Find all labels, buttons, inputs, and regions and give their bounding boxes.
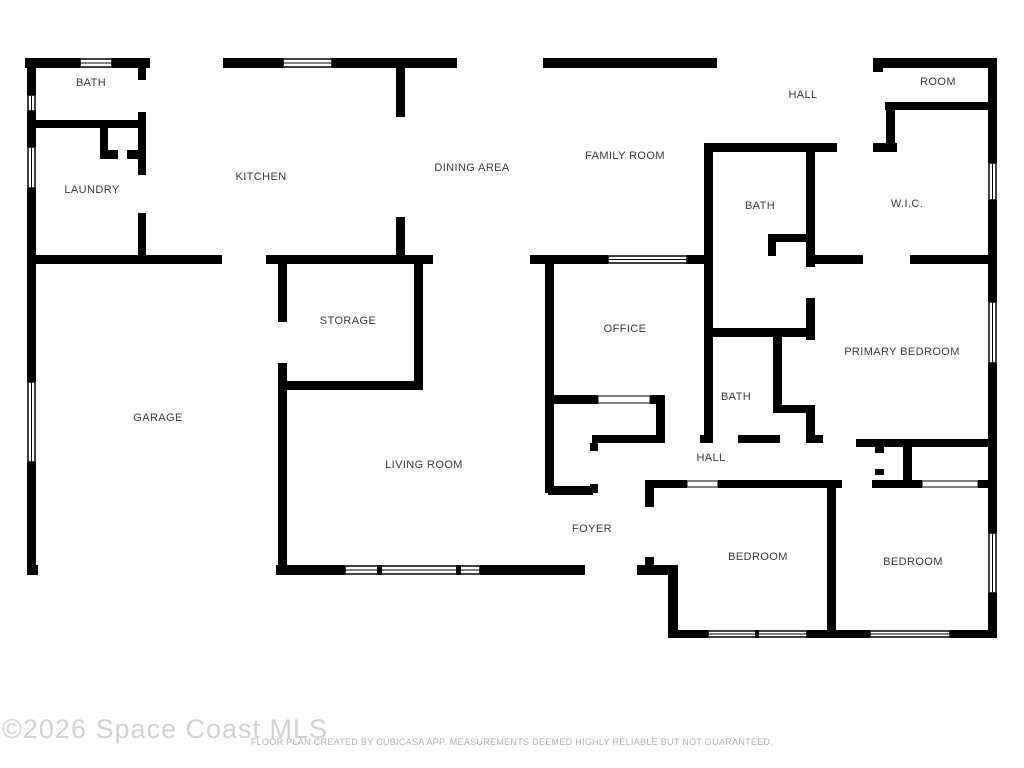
room-label-wic: W.I.C.	[891, 198, 923, 210]
room-label-foyer: FOYER	[572, 523, 612, 535]
floor-plan-page: BATH LAUNDRY KITCHEN DINING AREA FAMILY …	[0, 0, 1024, 768]
floor-plan-drawing	[0, 0, 1024, 768]
room-label-office: OFFICE	[604, 323, 647, 335]
room-label-hall-lower: HALL	[696, 452, 725, 464]
room-label-living-room: LIVING ROOM	[385, 459, 463, 471]
room-label-primary-bedroom: PRIMARY BEDROOM	[844, 346, 960, 358]
room-label-bedroom-right: BEDROOM	[883, 556, 943, 568]
room-label-storage: STORAGE	[320, 315, 376, 327]
room-label-bath-top: BATH	[76, 77, 106, 89]
disclaimer-text: FLOOR PLAN CREATED BY CUBICASA APP. MEAS…	[0, 737, 1024, 747]
room-label-bath-upper: BATH	[745, 200, 775, 212]
room-label-hall-top: HALL	[788, 89, 817, 101]
room-label-room: ROOM	[920, 76, 956, 88]
room-label-bedroom-left: BEDROOM	[728, 551, 788, 563]
room-label-laundry: LAUNDRY	[64, 184, 119, 196]
room-label-bath-lower: BATH	[721, 391, 751, 403]
room-label-family-room: FAMILY ROOM	[585, 150, 665, 162]
room-label-garage: GARAGE	[133, 412, 182, 424]
room-label-dining-area: DINING AREA	[434, 162, 509, 174]
room-label-kitchen: KITCHEN	[235, 171, 286, 183]
